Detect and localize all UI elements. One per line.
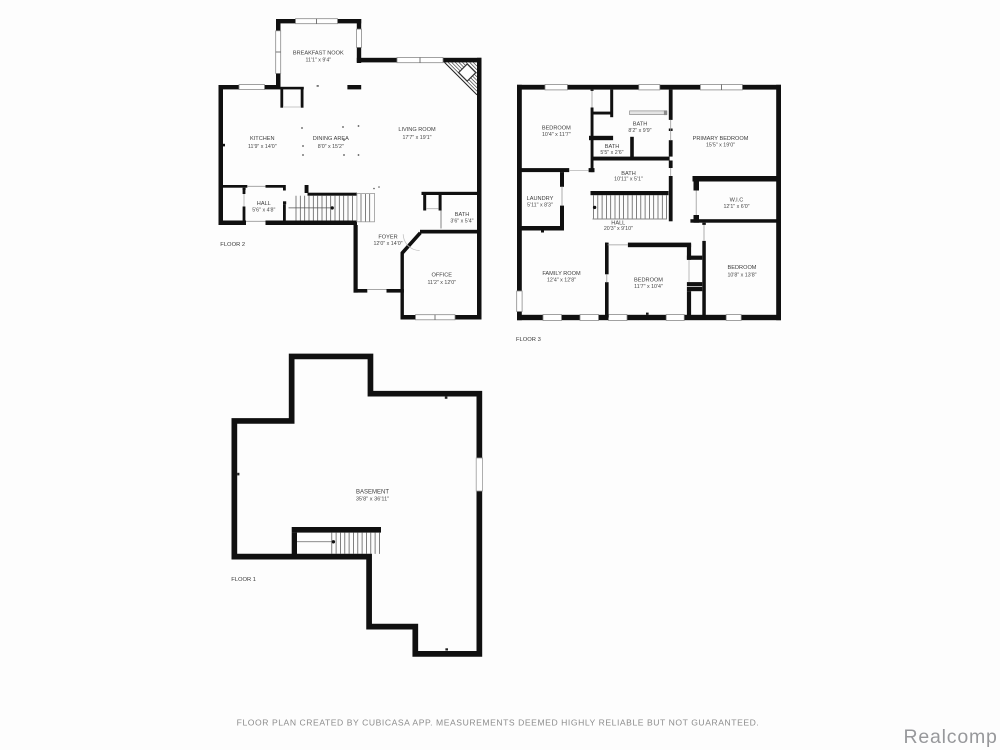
svg-text:3'6" x 5'4": 3'6" x 5'4"	[450, 218, 473, 224]
svg-text:11'1" x 9'4": 11'1" x 9'4"	[305, 57, 331, 63]
svg-text:10'11" x 5'1": 10'11" x 5'1"	[614, 176, 643, 182]
svg-text:PRIMARY BEDROOM: PRIMARY BEDROOM	[693, 136, 749, 142]
svg-text:5'11" x 8'3": 5'11" x 8'3"	[527, 202, 553, 208]
svg-text:17'7" x 19'1": 17'7" x 19'1"	[402, 135, 431, 141]
svg-text:8'0" x 15'2": 8'0" x 15'2"	[318, 144, 344, 150]
svg-text:DINING AREA: DINING AREA	[313, 136, 349, 142]
svg-text:W.I.C: W.I.C	[730, 198, 744, 204]
svg-text:20'3" x 9'10": 20'3" x 9'10"	[604, 226, 633, 232]
svg-text:BREAKFAST NOOK: BREAKFAST NOOK	[293, 50, 344, 56]
svg-text:BATH: BATH	[455, 212, 470, 218]
svg-text:BEDROOM: BEDROOM	[542, 125, 571, 131]
svg-text:FLOOR 2: FLOOR 2	[220, 242, 245, 248]
svg-text:LIVING ROOM: LIVING ROOM	[398, 127, 436, 133]
svg-text:11'9" x 14'0": 11'9" x 14'0"	[248, 144, 277, 150]
svg-text:5'5" x 2'6": 5'5" x 2'6"	[600, 150, 623, 156]
svg-text:11'7" x 10'4": 11'7" x 10'4"	[634, 284, 663, 290]
svg-text:FLOOR 1: FLOOR 1	[231, 577, 256, 583]
svg-text:FOYER: FOYER	[378, 234, 397, 240]
svg-text:OFFICE: OFFICE	[432, 273, 453, 279]
svg-text:10'8" x 13'8": 10'8" x 13'8"	[727, 272, 756, 278]
svg-text:FLOOR PLAN CREATED BY CUBICASA: FLOOR PLAN CREATED BY CUBICASA APP. MEAS…	[237, 717, 760, 727]
svg-text:10'4" x 11'7": 10'4" x 11'7"	[542, 132, 571, 138]
svg-text:35'8" x 36'11": 35'8" x 36'11"	[356, 497, 389, 503]
svg-text:HALL: HALL	[257, 201, 271, 207]
svg-text:11'2" x 12'0": 11'2" x 12'0"	[427, 280, 456, 286]
svg-text:FLOOR 3: FLOOR 3	[516, 337, 541, 343]
svg-text:Realcomp: Realcomp	[904, 726, 998, 748]
svg-text:BEDROOM: BEDROOM	[728, 265, 757, 271]
svg-text:12'1" x 6'0": 12'1" x 6'0"	[723, 204, 749, 210]
svg-text:KITCHEN: KITCHEN	[250, 136, 275, 142]
svg-text:FAMILY ROOM: FAMILY ROOM	[542, 271, 581, 277]
svg-text:15'5" x 19'0": 15'5" x 19'0"	[706, 142, 735, 148]
svg-text:LAUNDRY: LAUNDRY	[527, 196, 554, 202]
svg-text:8'2" x 9'9": 8'2" x 9'9"	[628, 128, 651, 134]
svg-text:12'0" x 14'0": 12'0" x 14'0"	[373, 241, 402, 247]
svg-text:BEDROOM: BEDROOM	[634, 278, 663, 284]
svg-text:BASEMENT: BASEMENT	[356, 489, 389, 495]
svg-text:BATH: BATH	[633, 122, 648, 128]
svg-text:12'4" x 12'8": 12'4" x 12'8"	[547, 277, 576, 283]
svg-text:5'6" x 4'8": 5'6" x 4'8"	[252, 208, 275, 214]
